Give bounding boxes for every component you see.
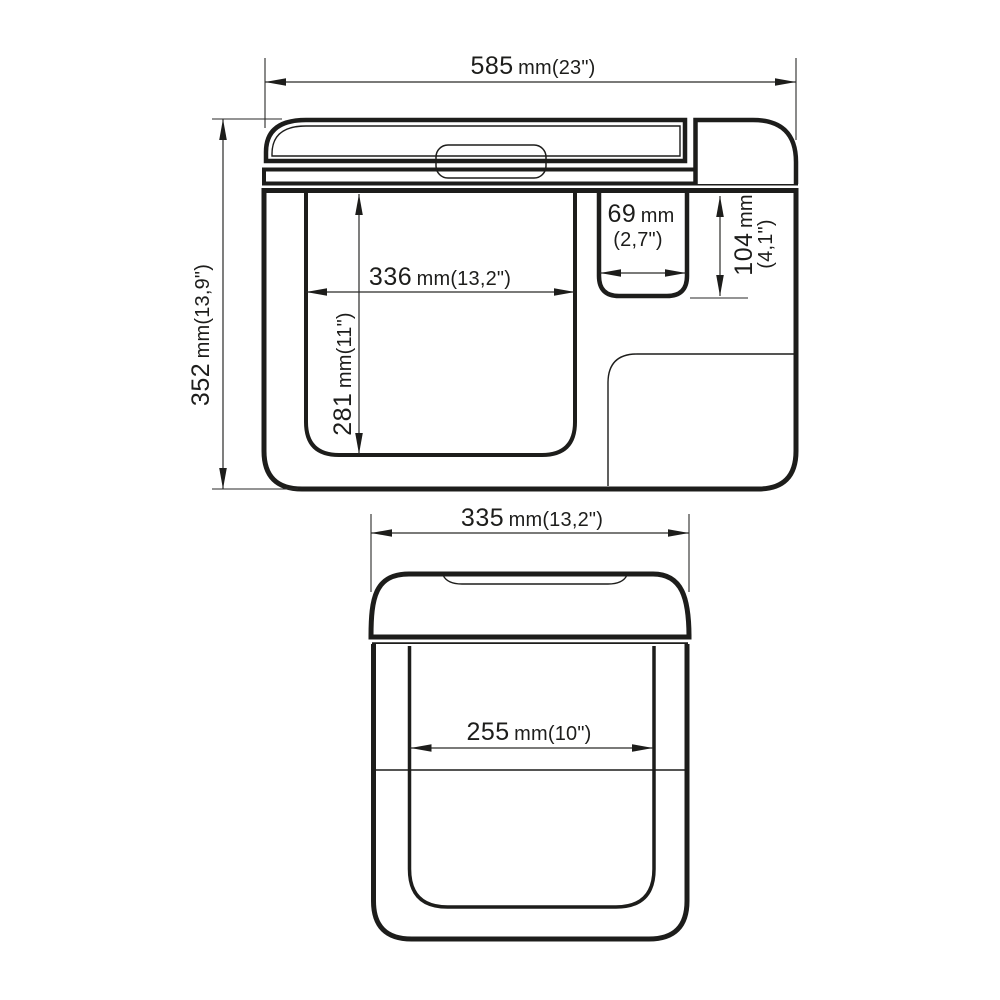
dim-side-cavity-width-label: 336 mm(13,2") [369, 263, 511, 291]
technical-drawing: 585 mm(23") 352 mm(13,9") 336 mm(13,2") [0, 0, 1000, 1000]
dim-side-small-cavity-depth-alt: (4,1") [755, 219, 777, 268]
drawing-svg: 585 mm(23") 352 mm(13,9") 336 mm(13,2") [0, 0, 1000, 1000]
dim-side-small-cavity-width-alt: (2,7") [613, 229, 662, 251]
dim-side-small-cavity-width-label: 69 mm [608, 200, 675, 228]
side-view: 585 mm(23") 352 mm(13,9") 336 mm(13,2") [187, 52, 796, 489]
front-inner-cavity [410, 646, 655, 907]
dim-front-cavity-width-label: 255 mm(10") [466, 718, 591, 746]
dim-side-small-cavity-depth-label: 104 mm [730, 194, 758, 275]
dim-side-cavity-depth-label: 281 mm(11") [329, 312, 357, 436]
dim-side-overall-height-label: 352 mm(13,9") [187, 264, 215, 406]
dim-side-overall-width-label: 585 mm(23") [470, 52, 595, 80]
dim-front-overall-width-label: 335 mm(13,2") [461, 504, 603, 532]
side-right-section [696, 120, 797, 184]
front-view: 335 mm(13,2") 255 mm(10") [369, 504, 692, 939]
